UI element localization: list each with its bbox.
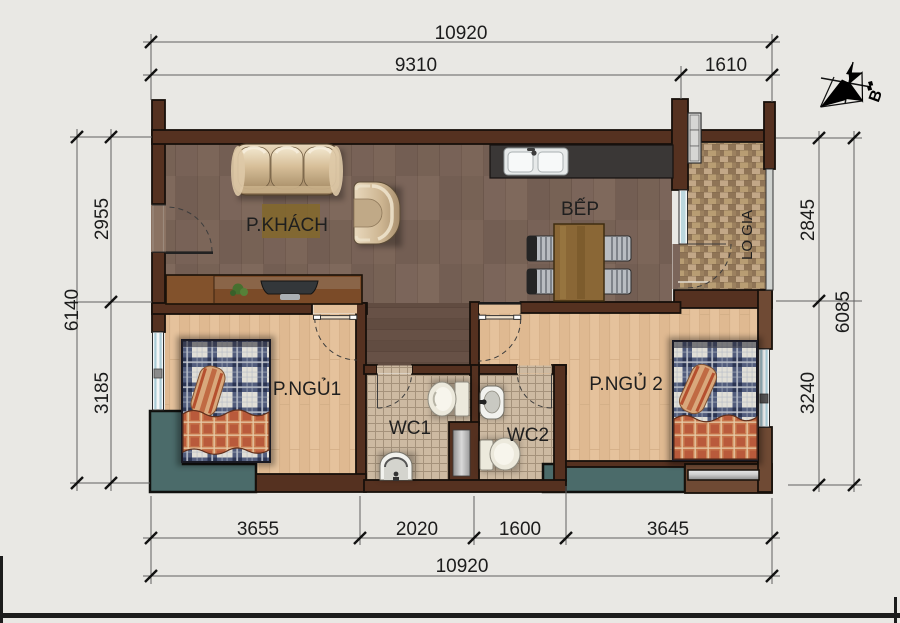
svg-text:P.NGỦ 2: P.NGỦ 2	[589, 373, 663, 395]
svg-text:6085: 6085	[833, 291, 854, 333]
svg-text:10920: 10920	[435, 23, 488, 44]
svg-text:2020: 2020	[396, 519, 438, 540]
svg-text:9310: 9310	[395, 55, 437, 76]
svg-text:2845: 2845	[798, 199, 819, 241]
svg-text:3240: 3240	[798, 372, 819, 414]
svg-text:3185: 3185	[92, 372, 113, 414]
svg-text:3645: 3645	[647, 519, 689, 540]
svg-text:LO GIA: LO GIA	[739, 210, 756, 260]
svg-text:P.KHÁCH: P.KHÁCH	[246, 215, 328, 236]
svg-text:BẾP: BẾP	[561, 198, 599, 220]
svg-text:10920: 10920	[436, 556, 489, 577]
svg-text:2955: 2955	[92, 198, 113, 240]
svg-text:3655: 3655	[237, 519, 279, 540]
svg-text:1600: 1600	[499, 519, 541, 540]
svg-text:1610: 1610	[705, 55, 747, 76]
svg-text:P.NGỦ1: P.NGỦ1	[273, 378, 341, 400]
svg-text:WC1: WC1	[389, 418, 431, 439]
svg-text:WC2: WC2	[507, 425, 549, 446]
svg-text:6140: 6140	[62, 289, 83, 331]
